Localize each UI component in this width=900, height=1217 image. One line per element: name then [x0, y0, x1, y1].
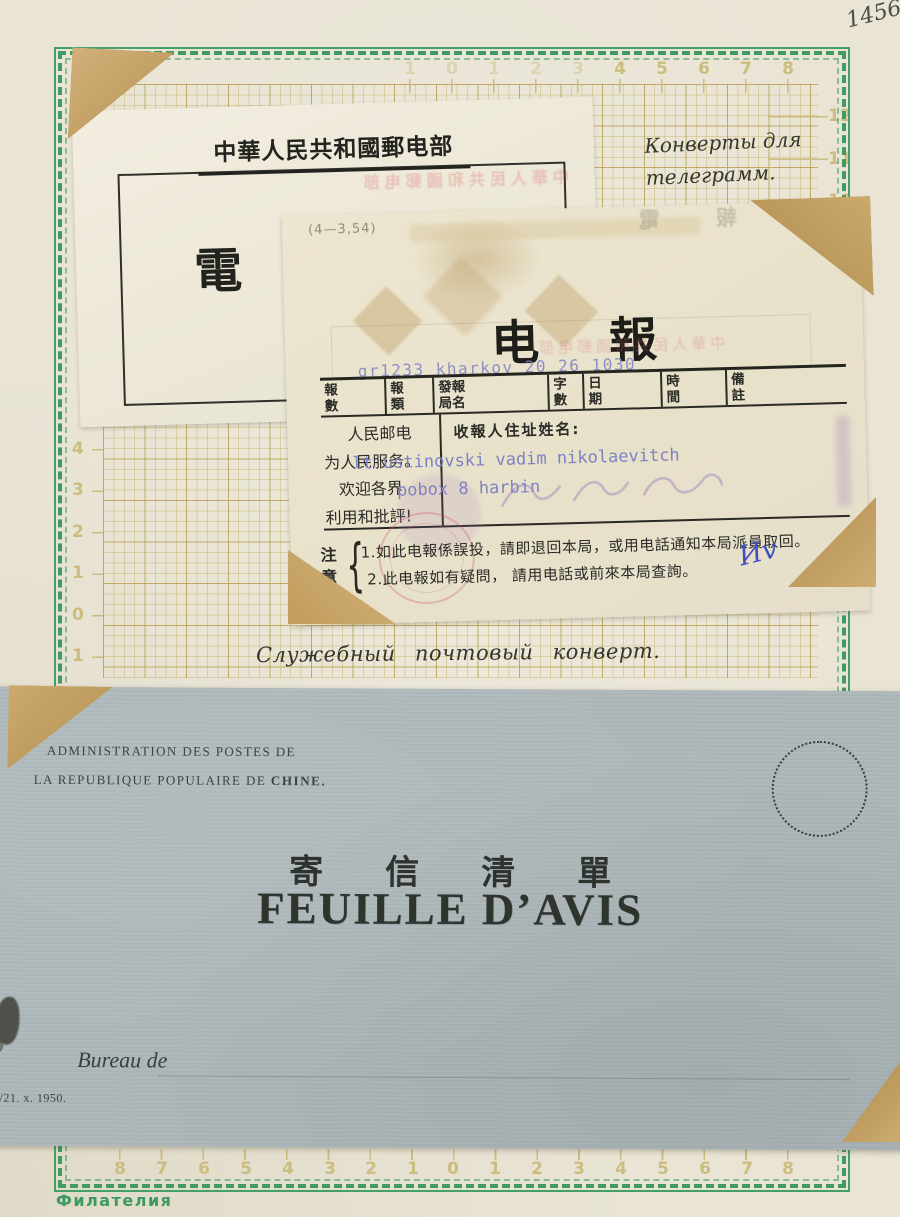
- country-name: CHINE.: [271, 773, 327, 788]
- admin-line: ADMINISTRATION DES POSTES DE: [47, 743, 296, 760]
- handwritten-page-number: 1456: [844, 0, 900, 33]
- table-header-cell: 報類: [384, 378, 433, 414]
- form-code: (4—3,54): [308, 221, 377, 238]
- admin-line: LA REPUBLIQUE POPULAIRE DE CHINE.: [34, 772, 327, 790]
- print-imprint: 0/21. x. 1950.: [0, 1091, 66, 1106]
- feuille-davis-envelope: ADMINISTRATION DES POSTES DE LA REPUBLIQ…: [0, 687, 900, 1151]
- table-header-cell: 時間: [660, 370, 726, 407]
- purple-handwriting: [493, 462, 724, 520]
- ink-smudge: [0, 997, 20, 1045]
- postmark-circle: [771, 741, 868, 838]
- table-header-cell: 字數: [547, 374, 583, 410]
- album-brand-label: Филателия: [56, 1191, 172, 1210]
- bureau-label: Bureau de: [77, 1047, 167, 1073]
- table-header-cell: 日期: [582, 372, 661, 409]
- table-header-cell: 報數: [320, 379, 385, 416]
- slogan-line: 人民邮电: [321, 419, 440, 450]
- telegram-seal-character: 電: [193, 231, 243, 302]
- table-header-cell: 備註: [725, 367, 847, 405]
- purple-ink-smear: [835, 416, 851, 506]
- table-header-cell: 發報局名: [432, 375, 548, 413]
- caption-telegram-envelopes: Конверты для телеграмм.: [644, 122, 827, 194]
- bureau-fill-line: [159, 1055, 849, 1080]
- envelope-title-french: FEUILLE D’AVIS: [0, 881, 900, 938]
- cover-header-text: 中華人民共和國郵电部: [197, 126, 470, 176]
- caption-service-envelope: Служебный почтовый конверт.: [256, 639, 661, 667]
- album-page: 1 0 1 2 3 4 5 6 7 8 4 3 2 1 0 1 12 11 10…: [0, 0, 900, 1217]
- telegram-delivery-form: (4—3,54) 中報電 电 報 中華人民共和國郵电部 gr1233 khark…: [282, 201, 871, 626]
